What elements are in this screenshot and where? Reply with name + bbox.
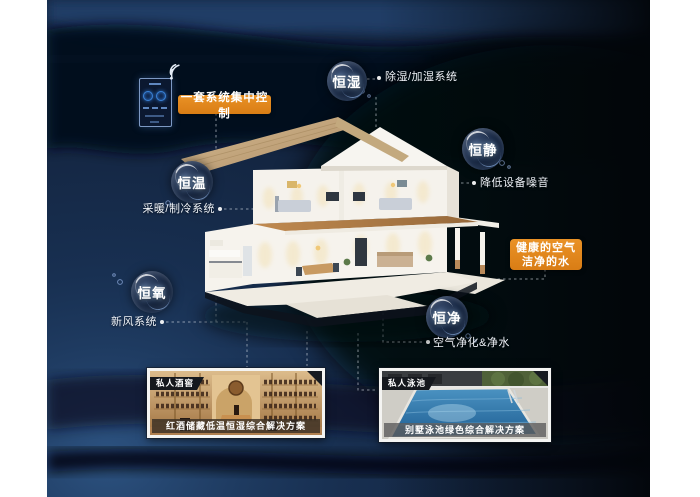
- wine-cellar-card: 私人酒窖 红酒储藏低温恒湿综合解决方案: [147, 368, 325, 438]
- kitchen-hood: [210, 240, 223, 246]
- bubble-constant-temperature: 恒温: [171, 161, 213, 203]
- corner-fold-icon: [307, 371, 322, 386]
- kitchen-upper-cabinet: [209, 250, 240, 257]
- phone-titlebar: [149, 83, 161, 85]
- bubble-constant-quiet-label: 恒静: [469, 139, 498, 159]
- phone-stat-3: [161, 107, 167, 109]
- healthy-air-line: 健康的空气: [516, 241, 576, 255]
- pool-caption: 别墅泳池绿色综合解决方案: [384, 423, 546, 437]
- refrigerator: [243, 246, 252, 276]
- poster-canvas: 一套系统集中控制 健康的空气 洁净的水 恒湿 恒静 恒温 恒氧 恒净 除湿/加湿…: [47, 0, 650, 497]
- dehumidify-system-label: 除湿/加湿系统: [385, 70, 458, 84]
- porch-column-base: [455, 260, 460, 269]
- bedroom-tv: [326, 192, 339, 201]
- second-floor-side-wall: [447, 166, 459, 220]
- central-control-callout: 一套系统集中控制: [178, 95, 271, 114]
- bubble-constant-humidity-label: 恒湿: [333, 71, 362, 91]
- healthy-air-water-callout: 健康的空气 洁净的水: [510, 239, 582, 270]
- wine-cellar-tag: 私人酒窖: [150, 377, 204, 390]
- phone-dial-right: [156, 91, 166, 101]
- corner-fold-icon: [533, 371, 548, 386]
- bubble-constant-temperature-label: 恒温: [178, 172, 207, 192]
- plant: [344, 259, 351, 266]
- phone-stat-2: [152, 107, 158, 109]
- noise-reduction-label: 降低设备噪音: [480, 176, 549, 190]
- kitchen-counter: [209, 261, 242, 263]
- bubble-constant-clean-label: 恒净: [433, 307, 462, 327]
- bedroom-tv-2: [353, 192, 365, 201]
- bubble-constant-quiet: 恒静: [462, 128, 504, 170]
- bubble-constant-humidity: 恒湿: [327, 61, 367, 101]
- fresh-air-system-label: 新风系统: [109, 315, 157, 329]
- bedroom-divider-wall: [339, 170, 344, 220]
- dining-chair-2: [333, 263, 339, 272]
- pool-tag: 私人泳池: [382, 377, 436, 390]
- dining-pendant-light: [316, 246, 321, 251]
- kitchen-base-cabinet: [209, 263, 242, 278]
- bed: [278, 200, 311, 212]
- phone-menu-row: [145, 115, 164, 117]
- phone-stat-1: [143, 107, 149, 109]
- phone-dial-left: [143, 91, 153, 101]
- plant-2: [426, 255, 433, 262]
- wine-cellar-caption: 红酒储藏低温恒湿综合解决方案: [152, 419, 320, 433]
- wifi-signal-icon: [168, 63, 186, 81]
- wall-art-2: [397, 180, 407, 187]
- smart-control-phone: [139, 78, 172, 127]
- heating-cooling-system-label: 采暖/制冷系统: [141, 202, 215, 216]
- pool-card: 私人泳池 别墅泳池绿色综合解决方案: [379, 368, 551, 442]
- phone-home-bar: [150, 121, 159, 123]
- bed-2: [379, 198, 412, 210]
- poster-page: 一套系统集中控制 健康的空气 洁净的水 恒湿 恒静 恒温 恒氧 恒净 除湿/加湿…: [0, 0, 700, 497]
- central-control-label: 一套系统集中控制: [178, 89, 271, 121]
- sofa: [377, 256, 413, 267]
- dining-chair: [296, 267, 302, 276]
- pendant-light-2: [391, 183, 395, 187]
- air-water-purify-label: 空气净化&净水: [433, 336, 510, 350]
- porch-column-base-2: [480, 265, 485, 274]
- bubble-constant-clean: 恒净: [426, 296, 468, 338]
- clean-water-line: 洁净的水: [522, 255, 570, 269]
- pendant-light: [297, 184, 301, 188]
- bubble-constant-oxygen: 恒氧: [131, 271, 173, 313]
- bubble-constant-oxygen-label: 恒氧: [138, 282, 167, 302]
- wall-art: [287, 181, 297, 188]
- tv-fireplace-column: [355, 238, 367, 266]
